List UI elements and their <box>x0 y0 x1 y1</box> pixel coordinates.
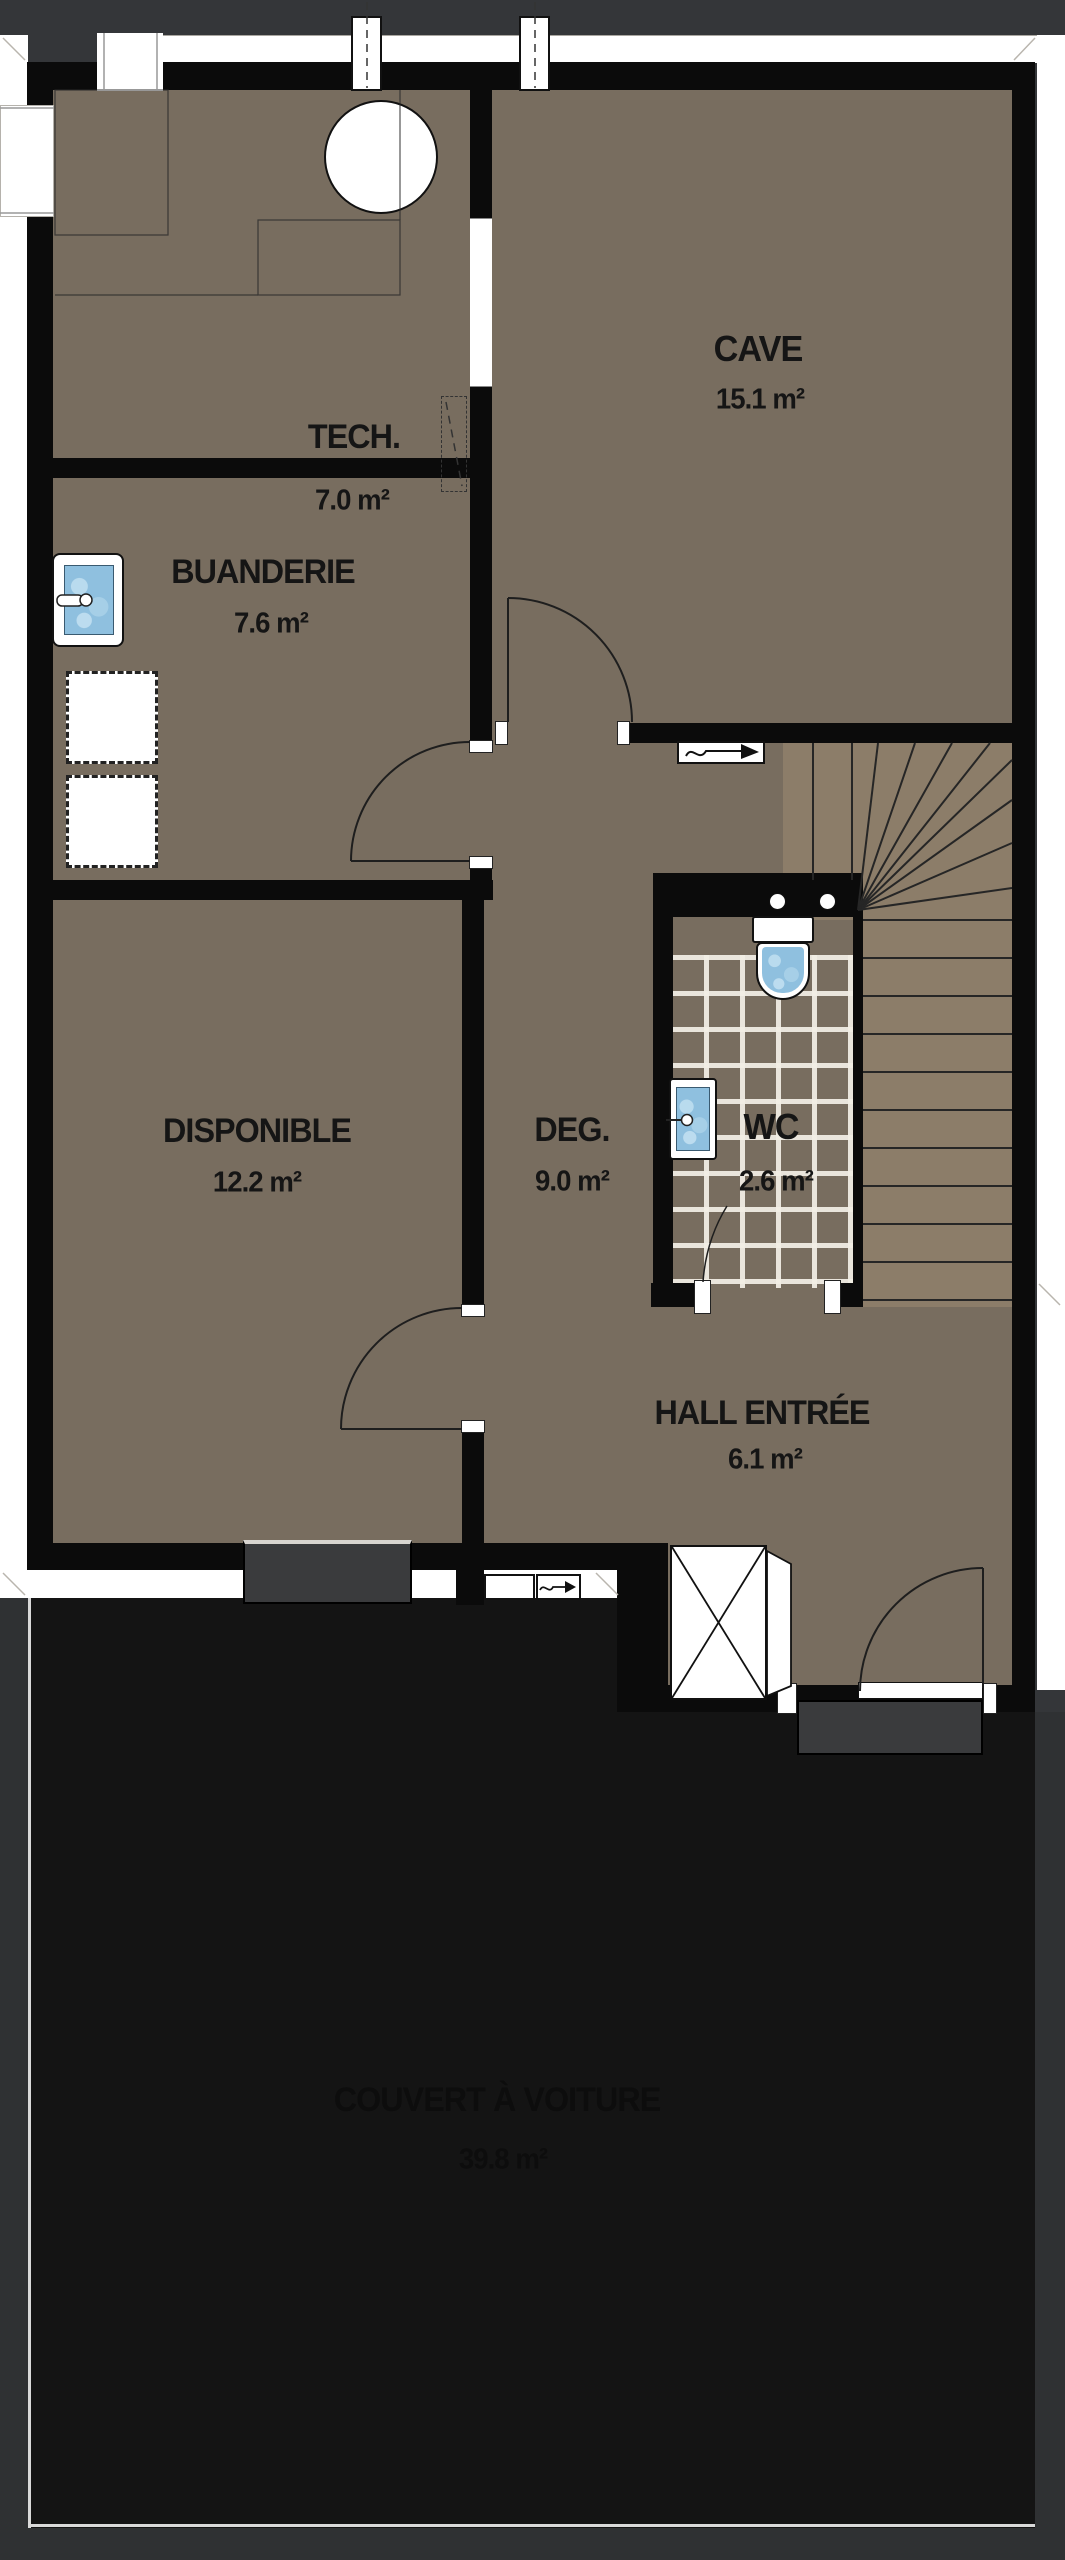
platform-lines <box>55 90 400 295</box>
room-area-disponible: 12.2 m² <box>213 1169 301 1198</box>
plan-linework <box>0 0 1065 2560</box>
duct-flue-lines <box>367 2 535 486</box>
room-label-wc: WC <box>743 1109 798 1145</box>
stair-treads <box>813 743 1012 1300</box>
room-area-wc: 2.6 m² <box>739 1168 813 1197</box>
faucet-icon <box>57 594 693 1126</box>
room-area-deg: 9.0 m² <box>535 1168 609 1197</box>
light-shaft-x <box>672 1547 791 1698</box>
room-label-tech: TECH. <box>308 420 400 454</box>
room-area-cave: 15.1 m² <box>716 386 804 415</box>
room-area-couvert: 39.8 m² <box>459 2146 547 2175</box>
room-area-hall: 6.1 m² <box>728 1446 802 1475</box>
room-label-hall: HALL ENTRÉE <box>654 1396 869 1430</box>
floor-plan: TECH. 7.0 m² CAVE 15.1 m² BUANDERIE 7.6 … <box>0 0 1065 2560</box>
room-area-tech: 7.0 m² <box>315 487 389 516</box>
room-label-cave: CAVE <box>714 331 803 367</box>
door-arcs <box>341 598 983 1691</box>
window-jamb-lines <box>0 33 157 213</box>
room-label-couvert: COUVERT À VOITURE <box>334 2083 661 2117</box>
corner-hatch-lines <box>3 38 1060 1595</box>
room-label-disponible: DISPONIBLE <box>163 1114 351 1148</box>
room-label-buanderie: BUANDERIE <box>171 555 354 589</box>
room-label-deg: DEG. <box>534 1113 609 1147</box>
room-area-buanderie: 7.6 m² <box>234 610 308 639</box>
